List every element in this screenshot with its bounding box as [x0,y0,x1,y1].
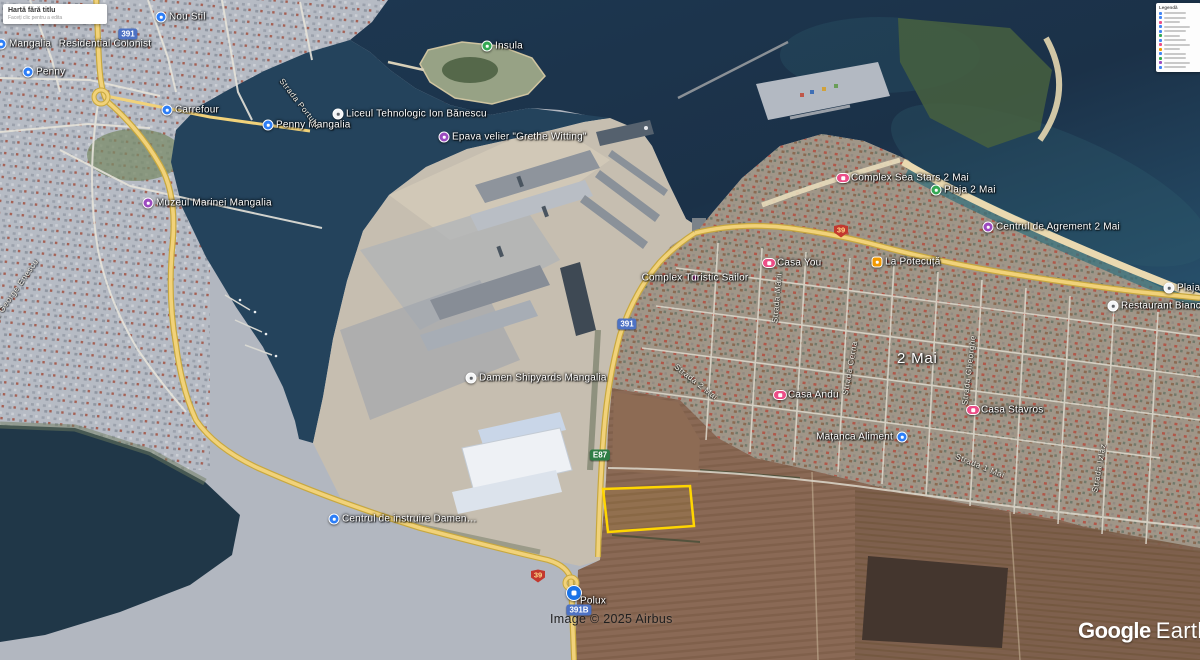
shop-icon [263,120,274,131]
legend-item[interactable] [1159,43,1198,47]
marker-label: Casa Stavros [981,405,1043,416]
restaurant-icon [872,257,883,268]
road-badge-391: 391 [118,29,137,40]
marker-label: Restaurant Bianca [1121,301,1200,312]
legend-item-text [1164,66,1186,68]
marker-label: Mațanca Aliment [816,432,893,443]
marker-label: Centrul de Agrement 2 Mai [996,222,1120,233]
imagery-attribution: Image © 2025 Airbus [550,612,673,626]
marker-label: Mangalia [9,39,51,50]
legend-item[interactable] [1159,16,1198,20]
legend-item-icon [1159,16,1162,19]
legend-item-icon [1159,12,1162,15]
legend-item[interactable] [1159,38,1198,42]
shop-icon [156,12,167,23]
legend-item-text [1164,12,1186,14]
shop-icon [23,67,34,78]
marker-label: Casa Andu [788,390,839,401]
legend-items [1159,11,1198,69]
lodging-icon [966,405,980,415]
legend-item-text [1164,39,1186,41]
legend-item-icon [1159,48,1162,51]
legend-item-text [1164,26,1190,28]
marker-label: Residential Colonist [59,39,151,50]
marker-label: Insula [495,41,523,52]
legend-item-icon [1159,57,1162,60]
marker-label: Penny [36,67,65,78]
legend-item[interactable] [1159,52,1198,56]
legend-item[interactable] [1159,20,1198,24]
legend-item[interactable] [1159,25,1198,29]
lodging-icon [762,258,776,268]
legend-item-icon [1159,25,1162,28]
legend-item[interactable] [1159,29,1198,33]
dining-icon [1108,301,1119,312]
map-card-subtitle: Faceți clic pentru a edita [8,15,102,21]
map-card-title: Hartă fără titlu [8,7,102,15]
marker-label: Epava velier "Grethe Witting" [452,132,587,143]
shop-icon [897,432,908,443]
legend-item[interactable] [1159,56,1198,60]
legend-item-icon [1159,52,1162,55]
legend-item[interactable] [1159,61,1198,65]
beach-icon [1164,283,1175,294]
marker-label: Complex Turistic Sailor [642,273,749,284]
google-earth-viewport: MangaliaResidential ColonistNou StilPenn… [0,0,1200,660]
legend-item[interactable] [1159,11,1198,15]
marker-label: Centrul de instruire Damen… [342,514,477,525]
marker-label: La Potecuță [885,257,941,268]
town-label-2-mai: 2 Mai [897,350,938,367]
legend-item-text [1164,21,1180,23]
legend-item-text [1164,30,1186,32]
legend-item-text [1164,48,1180,50]
google-earth-watermark: GoogleEarth [1078,618,1200,644]
legend-item[interactable] [1159,65,1198,69]
legend-item-text [1164,35,1180,37]
satellite-imagery [0,0,1200,660]
marker-label: Carrefour [175,105,219,116]
legend-item-icon [1159,30,1162,33]
legend-item-icon [1159,61,1162,64]
legend-item-text [1164,62,1190,64]
legend-item-icon [1159,43,1162,46]
lodging-icon [836,173,850,183]
legend-item-text [1164,53,1186,55]
legend-item-icon [1159,34,1162,37]
marker-label: Casa You [777,258,821,269]
legend-panel[interactable]: Legendă [1156,3,1200,72]
school-icon [333,109,344,120]
anchor-icon [466,373,477,384]
museum-icon [983,222,994,233]
untitled-map-card[interactable]: Hartă fără titlu Faceți clic pentru a ed… [3,4,107,24]
legend-item-icon [1159,39,1162,42]
museum-icon [439,132,450,143]
marker-label: Liceul Tehnologic Ion Bănescu [346,109,487,120]
selected-parcel-polygon[interactable] [603,486,694,532]
marker-label: Plaja 2 Mai [944,185,996,196]
marker-label: Muzeul Marinei Mangalia [156,198,272,209]
marker-label: Nou Stil [169,12,206,23]
legend-item-text [1164,57,1186,59]
marker-label: Plaja [1177,283,1200,294]
legend-item-text [1164,44,1190,46]
shop-icon [162,105,173,116]
museum-icon [143,198,154,209]
earth-logo-text: Earth [1156,618,1200,643]
legend-item[interactable] [1159,47,1198,51]
google-logo-text: Google [1078,618,1151,643]
legend-item-icon [1159,66,1162,69]
road-badge-391: 391 [617,319,636,330]
legend-title: Legendă [1159,5,1198,10]
poi-icon [329,514,340,525]
park-icon [931,185,942,196]
marker-label: Damen Shipyards Mangalia [479,373,607,384]
legend-item-text [1164,17,1186,19]
lodging-icon [773,390,787,400]
legend-item[interactable] [1159,34,1198,38]
marker-label: Complex Sea Stars 2 Mai [851,173,969,184]
park-icon [482,41,493,52]
legend-item-icon [1159,21,1162,24]
road-badge-e87: E87 [590,450,610,461]
